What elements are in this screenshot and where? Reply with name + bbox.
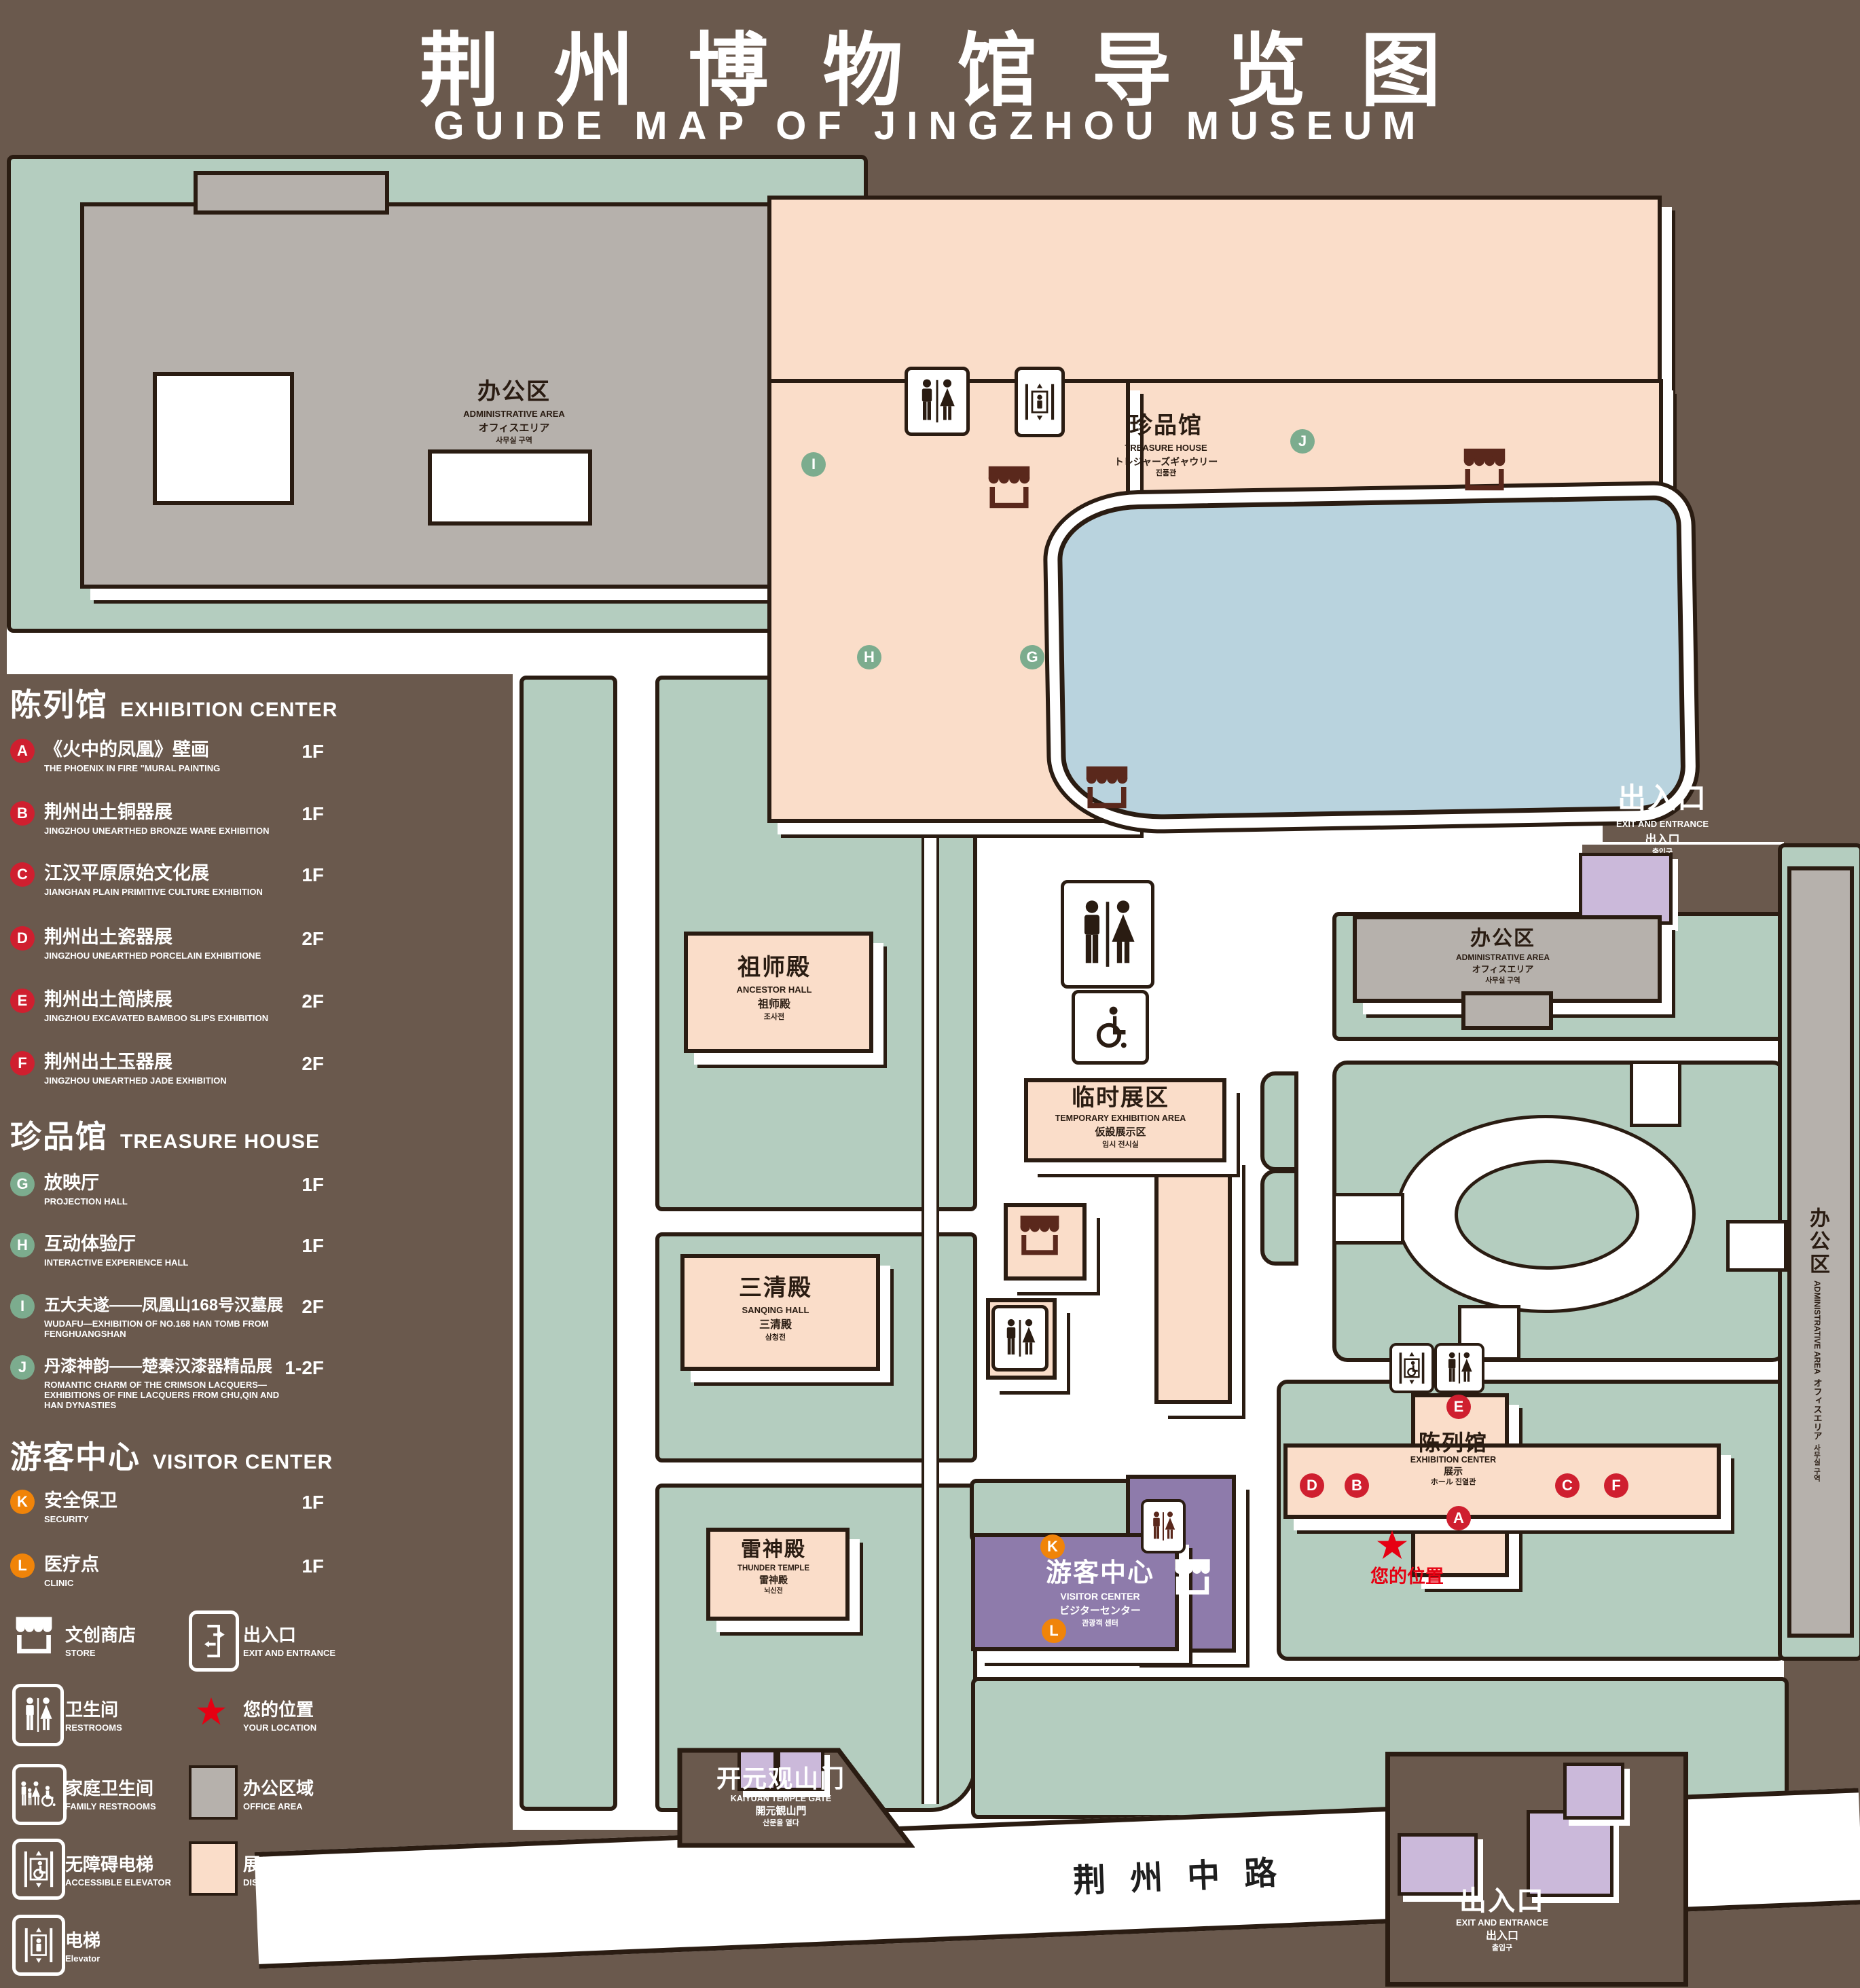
building-lavender-s3 <box>1563 1763 1624 1820</box>
label-treasure: 珍品馆 TREASURE HOUSE トレジャーズギャウリー 진품관 <box>1114 411 1218 479</box>
item-en: JIANGHAN PLAIN PRIMITIVE CULTURE EXHIBIT… <box>44 887 297 897</box>
legend-section-exhibition: 陈列馆 EXHIBITION CENTER <box>10 680 338 725</box>
item-zh: 安全保卫 <box>44 1490 297 1512</box>
section-en: VISITOR CENTER <box>153 1451 333 1477</box>
sym-en: YOUR LOCATION <box>243 1723 316 1733</box>
sym-en: ACCESSIBLE ELEVATOR <box>65 1877 171 1888</box>
temporary-en: TEMPORARY EXHIBITION AREA <box>1055 1113 1186 1124</box>
lawn-mid-small-2 <box>1260 1169 1298 1266</box>
store-icon <box>985 464 1034 509</box>
label-thunder-temple: 雷神殿 THUNDER TEMPLE 雷神殿 뇌신전 <box>737 1537 809 1596</box>
legend-item-b: B 荆州出土铜器展 JINGZHOU UNEARTHED BRONZE WARE… <box>10 801 324 836</box>
exit-icon <box>189 1610 239 1672</box>
elevator-icon <box>1015 367 1065 437</box>
building-treasure-bar <box>767 196 1662 388</box>
accessible-restroom-icon <box>1072 990 1149 1065</box>
item-en: WUDAFU—EXHIBITION OF NO.168 HAN TOMB FRO… <box>44 1319 297 1339</box>
item-floor: 1F <box>302 1174 324 1196</box>
road-name: 荆州中路 <box>1072 1845 1302 1901</box>
exit-ne-en: EXIT AND ENTRANCE <box>1616 819 1709 830</box>
item-en: JINGZHOU UNEARTHED JADE EXHIBITION <box>44 1075 297 1086</box>
accessible-elevator-icon <box>1389 1343 1434 1393</box>
thunder-ja: 雷神殿 <box>737 1575 809 1587</box>
section-en: EXHIBITION CENTER <box>120 699 338 725</box>
map-badge-k: K <box>1040 1534 1065 1559</box>
legend-item-d: D 荆州出土瓷器展 JINGZHOU UNEARTHED PORCELAIN E… <box>10 926 324 961</box>
map-badge-d: D <box>1300 1473 1324 1498</box>
path-thin-vertical <box>922 676 939 1804</box>
legend-family-restrooms: 家庭卫生间 FAMILY RESTROOMS <box>65 1775 156 1811</box>
exhibition-ja: 展示 <box>1410 1467 1496 1477</box>
admin-nw-zh: 办公区 <box>463 378 565 407</box>
page-subtitle: GUIDE MAP OF JINGZHOU MUSEUM <box>0 103 1860 149</box>
visitor-zh: 游客中心 <box>1046 1558 1154 1590</box>
badge-i: I <box>10 1294 35 1319</box>
lawn-exhibition-block <box>1277 1380 1789 1661</box>
courtyard-admin-nw-2 <box>428 449 592 526</box>
map-badge-j: J <box>1290 429 1315 454</box>
sanqing-zh: 三清殿 <box>739 1274 812 1303</box>
item-zh: 荆州出土玉器展 <box>44 1051 297 1073</box>
building-temporary-wing <box>1154 1150 1232 1404</box>
item-en: CLINIC <box>44 1578 297 1588</box>
restroom-icon <box>991 1305 1048 1372</box>
sanqing-ko: 삼청전 <box>739 1333 812 1343</box>
legend-your-location: 您的位置 YOUR LOCATION <box>243 1696 316 1733</box>
item-en: SECURITY <box>44 1514 297 1524</box>
sym-en: DISPLAY AREA <box>243 1877 314 1888</box>
pond <box>1057 495 1686 821</box>
item-floor: 1F <box>302 1235 324 1257</box>
section-zh: 陈列馆 <box>10 680 108 725</box>
your-location-text: 您的位置 <box>1370 1566 1444 1589</box>
exhibition-ko: ホール 진열관 <box>1410 1478 1496 1486</box>
office-area-swatch <box>189 1765 238 1820</box>
temporary-ja: 仮設展示区 <box>1055 1126 1186 1139</box>
accessible-elevator-icon <box>12 1839 65 1900</box>
sym-en: Elevator <box>65 1953 101 1964</box>
admin-e-ko: 사무실 구역 <box>1456 976 1550 985</box>
sym-zh: 展示区域 <box>243 1851 314 1876</box>
label-gate: 开元观山门 KAIYUAN TEMPLE GATE 開元観山門 산문을 열다 <box>716 1765 845 1827</box>
sym-en: RESTROOMS <box>65 1723 122 1733</box>
ancestor-en: ANCESTOR HALL <box>737 984 812 995</box>
admin-strip-zh: 办公区 <box>1802 1207 1832 1276</box>
item-zh: 五大夫遂——凤凰山168号汉墓展 <box>44 1294 297 1317</box>
sym-en: OFFICE AREA <box>243 1801 314 1811</box>
legend-item-g: G 放映厅 PROJECTION HALL 1F <box>10 1172 324 1207</box>
legend-item-a: A 《火中的凤凰》壁画 THE PHOENIX IN FIRE "MURAL P… <box>10 739 324 773</box>
item-en: JINGZHOU UNEARTHED PORCELAIN EXHIBITIONE <box>44 951 297 961</box>
badge-h: H <box>10 1233 35 1257</box>
item-zh: 荆州出土瓷器展 <box>44 926 297 949</box>
map-badge-e: E <box>1446 1395 1471 1419</box>
item-floor: 2F <box>302 991 324 1012</box>
item-floor: 1-2F <box>285 1357 324 1379</box>
restroom-icon <box>1061 880 1154 989</box>
admin-nw-ko: 사무실 구역 <box>463 437 565 446</box>
store-icon <box>1082 765 1131 809</box>
badge-d: D <box>10 926 35 951</box>
item-zh: 荆州出土铜器展 <box>44 801 297 824</box>
legend-item-l: L 医疗点 CLINIC 1F <box>10 1553 324 1588</box>
item-floor: 1F <box>302 864 324 886</box>
map-badge-a: A <box>1446 1506 1471 1530</box>
badge-k: K <box>10 1490 35 1514</box>
label-visitor-center: 游客中心 VISITOR CENTER ビジターセンター 관광객 센터 <box>1046 1558 1154 1629</box>
exit-s-ko: 출입구 <box>1456 1944 1548 1952</box>
badge-j: J <box>10 1355 35 1380</box>
item-zh: 医疗点 <box>44 1553 297 1576</box>
item-floor: 2F <box>302 1296 324 1318</box>
admin-strip-ko: 사무실 구역 <box>1812 1444 1823 1481</box>
item-en: PROJECTION HALL <box>44 1196 297 1207</box>
courtyard-admin-nw-1 <box>153 372 294 505</box>
display-area-swatch <box>189 1841 238 1896</box>
exhibition-en: EXHIBITION CENTER <box>1410 1456 1496 1465</box>
legend-section-visitor: 游客中心 VISITOR CENTER <box>10 1433 333 1477</box>
legend-exit: 出入口 EXIT AND ENTRANCE <box>243 1621 335 1658</box>
map-badge-b: B <box>1345 1473 1369 1498</box>
legend-item-c: C 江汉平原原始文化展 JIANGHAN PLAIN PRIMITIVE CUL… <box>10 862 324 897</box>
badge-l: L <box>10 1553 35 1578</box>
map-badge-c: C <box>1555 1473 1580 1498</box>
item-floor: 1F <box>302 741 324 762</box>
label-sanqing-hall: 三清殿 SANQING HALL 三清殿 삼청전 <box>739 1274 812 1343</box>
sym-zh: 无障碍电梯 <box>65 1851 171 1876</box>
thunder-en: THUNDER TEMPLE <box>737 1564 809 1573</box>
guide-map-poster: 荆州博物馆导览图 GUIDE MAP OF JINGZHOU MUSEUM 办公… <box>0 0 1860 1988</box>
admin-e-ja: オフィスエリア <box>1456 964 1550 975</box>
store-icon <box>1460 447 1509 492</box>
legend-item-f: F 荆州出土玉器展 JINGZHOU UNEARTHED JADE EXHIBI… <box>10 1051 324 1086</box>
map-badge-g: G <box>1020 645 1044 669</box>
legend-office-area: 办公区域 OFFICE AREA <box>243 1775 314 1811</box>
sym-en: STORE <box>65 1648 136 1658</box>
garden-path-stub-e <box>1726 1220 1787 1272</box>
section-zh: 游客中心 <box>10 1433 141 1477</box>
item-zh: 互动体验厅 <box>44 1233 297 1255</box>
treasure-en: TREASURE HOUSE <box>1114 443 1218 454</box>
restroom-icon <box>1434 1343 1484 1393</box>
item-zh: 荆州出土简牍展 <box>44 989 297 1011</box>
badge-f: F <box>10 1051 35 1075</box>
thunder-ko: 뇌신전 <box>737 1587 809 1596</box>
your-location-star <box>1376 1529 1408 1562</box>
badge-e: E <box>10 989 35 1013</box>
sym-zh: 文创商店 <box>65 1621 136 1646</box>
sym-zh: 家庭卫生间 <box>65 1775 156 1800</box>
legend-section-treasure: 珍品馆 TREASURE HOUSE <box>10 1112 320 1157</box>
exit-s-zh: 出入口 <box>1456 1886 1548 1916</box>
garden-path-stub-w <box>1332 1193 1404 1245</box>
building-lavender-s2 <box>1527 1810 1613 1897</box>
elevator-icon <box>12 1915 65 1976</box>
item-en: JINGZHOU UNEARTHED BRONZE WARE EXHIBITIO… <box>44 826 297 836</box>
label-admin-east-strip: 办公区 ADMINISTRATIVE AREA オフィスエリア 사무실 구역 <box>1783 1127 1851 1562</box>
item-zh: 放映厅 <box>44 1172 297 1194</box>
sym-en: EXIT AND ENTRANCE <box>243 1648 335 1658</box>
item-floor: 1F <box>302 1492 324 1513</box>
your-location-label: 您的位置 <box>1370 1566 1444 1589</box>
location-star-icon <box>196 1696 227 1727</box>
garden-path-stub-n <box>1630 1061 1681 1127</box>
badge-a: A <box>10 739 35 763</box>
section-zh: 珍品馆 <box>10 1112 108 1157</box>
sanqing-ja: 三清殿 <box>739 1319 812 1332</box>
legend-item-h: H 互动体验厅 INTERACTIVE EXPERIENCE HALL 1F <box>10 1233 324 1268</box>
sym-zh: 您的位置 <box>243 1696 316 1721</box>
legend-item-j: J 丹漆神韵——楚秦汉漆器精品展 ROMANTIC CHARM OF THE C… <box>10 1355 324 1410</box>
store-icon <box>14 1613 54 1657</box>
map-badge-i: I <box>801 452 826 477</box>
item-en: ROMANTIC CHARM OF THE CRIMSON LACQUERS—E… <box>44 1380 297 1410</box>
item-zh: 江汉平原原始文化展 <box>44 862 297 885</box>
legend-store: 文创商店 STORE <box>65 1621 136 1658</box>
temporary-zh: 临时展区 <box>1055 1084 1186 1113</box>
gate-ja: 開元観山門 <box>716 1806 845 1818</box>
admin-e-en: ADMINISTRATIVE AREA <box>1456 953 1550 963</box>
sym-en: FAMILY RESTROOMS <box>65 1801 156 1811</box>
exhibition-zh: 陈列馆 <box>1410 1431 1496 1455</box>
legend-item-i: I 五大夫遂——凤凰山168号汉墓展 WUDAFU—EXHIBITION OF … <box>10 1294 324 1339</box>
item-zh: 《火中的凤凰》壁画 <box>44 739 297 761</box>
item-floor: 1F <box>302 1556 324 1577</box>
restroom-icon <box>12 1684 64 1746</box>
building-admin-east-notch <box>1461 991 1553 1030</box>
garden-island <box>1455 1160 1639 1270</box>
gate-ko: 산문을 열다 <box>716 1819 845 1827</box>
legend-display-area: 展示区域 DISPLAY AREA <box>243 1851 314 1888</box>
label-exhibition: 陈列馆 EXHIBITION CENTER 展示 ホール 진열관 <box>1410 1431 1496 1486</box>
item-floor: 2F <box>302 1053 324 1075</box>
sym-zh: 出入口 <box>243 1621 335 1646</box>
legend-item-k: K 安全保卫 SECURITY 1F <box>10 1490 324 1524</box>
treasure-ja: トレジャーズギャウリー <box>1114 456 1218 468</box>
exit-ne-zh2: 出入口 <box>1616 832 1709 847</box>
lawn-west-strip <box>519 676 617 1811</box>
exit-s-en: EXIT AND ENTRANCE <box>1456 1918 1548 1928</box>
treasure-ko: 진품관 <box>1114 469 1218 479</box>
item-floor: 2F <box>302 928 324 950</box>
label-admin-nw: 办公区 ADMINISTRATIVE AREA オフィスエリア 사무실 구역 <box>463 378 565 445</box>
item-en: THE PHOENIX IN FIRE "MURAL PAINTING <box>44 763 297 773</box>
sym-zh: 电梯 <box>65 1927 101 1952</box>
temporary-ko: 임시 전시실 <box>1055 1141 1186 1150</box>
building-admin-nw-wing <box>194 171 389 215</box>
lawn-mid-small-1 <box>1260 1071 1298 1171</box>
admin-nw-en: ADMINISTRATIVE AREA <box>463 409 565 420</box>
exit-s-zh2: 出入口 <box>1456 1930 1548 1943</box>
store-icon <box>1172 1558 1213 1596</box>
item-en: JINGZHOU EXCAVATED BAMBOO SLIPS EXHIBITI… <box>44 1013 297 1023</box>
map-badge-l: L <box>1042 1619 1066 1643</box>
treasure-zh: 珍品馆 <box>1114 411 1218 441</box>
gate-en: KAIYUAN TEMPLE GATE <box>716 1794 845 1804</box>
visitor-ja: ビジターセンター <box>1046 1605 1154 1618</box>
badge-c: C <box>10 862 35 887</box>
item-zh: 丹漆神韵——楚秦汉漆器精品展 <box>44 1355 297 1378</box>
map-badge-f: F <box>1604 1473 1628 1498</box>
admin-strip-en: ADMINISTRATIVE AREA <box>1812 1281 1822 1374</box>
ancestor-zh: 祖师殿 <box>737 953 812 982</box>
label-temporary: 临时展区 TEMPORARY EXHIBITION AREA 仮設展示区 임시 … <box>1055 1084 1186 1150</box>
label-exit-south: 出入口 EXIT AND ENTRANCE 出入口 출입구 <box>1456 1886 1548 1952</box>
admin-e-zh: 办公区 <box>1456 926 1550 952</box>
store-icon <box>1017 1214 1062 1256</box>
sym-zh: 卫生间 <box>65 1696 122 1721</box>
section-en: TREASURE HOUSE <box>120 1130 320 1157</box>
item-en: INTERACTIVE EXPERIENCE HALL <box>44 1257 297 1268</box>
exit-ne-zh: 出入口 <box>1616 781 1709 817</box>
label-exit-ne: 出入口 EXIT AND ENTRANCE 出入口 출입구 <box>1616 781 1709 858</box>
legend-item-e: E 荆州出土简牍展 JINGZHOU EXCAVATED BAMBOO SLIP… <box>10 989 324 1023</box>
legend-elevator: 电梯 Elevator <box>65 1927 101 1964</box>
sym-zh: 办公区域 <box>243 1775 314 1800</box>
sanqing-en: SANQING HALL <box>739 1305 812 1316</box>
restroom-icon <box>905 367 970 436</box>
visitor-en: VISITOR CENTER <box>1046 1591 1154 1603</box>
ancestor-ko: 조사전 <box>737 1013 812 1023</box>
badge-g: G <box>10 1172 35 1196</box>
map-badge-h: H <box>857 645 881 669</box>
family-restroom-icon <box>12 1764 67 1825</box>
legend-accessible-elevator: 无障碍电梯 ACCESSIBLE ELEVATOR <box>65 1851 171 1888</box>
thunder-zh: 雷神殿 <box>737 1537 809 1563</box>
label-ancestor-hall: 祖师殿 ANCESTOR HALL 祖师殿 조사전 <box>737 953 812 1023</box>
admin-nw-ja: オフィスエリア <box>463 422 565 435</box>
item-floor: 1F <box>302 803 324 825</box>
building-lavender-ne <box>1579 853 1673 925</box>
legend-restrooms: 卫生间 RESTROOMS <box>65 1696 122 1733</box>
gate-zh: 开元观山门 <box>716 1765 845 1792</box>
ancestor-ja: 祖师殿 <box>737 998 812 1012</box>
badge-b: B <box>10 801 35 826</box>
restroom-icon <box>1141 1499 1186 1553</box>
admin-strip-ja: オフィスエリア <box>1811 1378 1824 1440</box>
label-admin-east: 办公区 ADMINISTRATIVE AREA オフィスエリア 사무실 구역 <box>1456 926 1550 985</box>
